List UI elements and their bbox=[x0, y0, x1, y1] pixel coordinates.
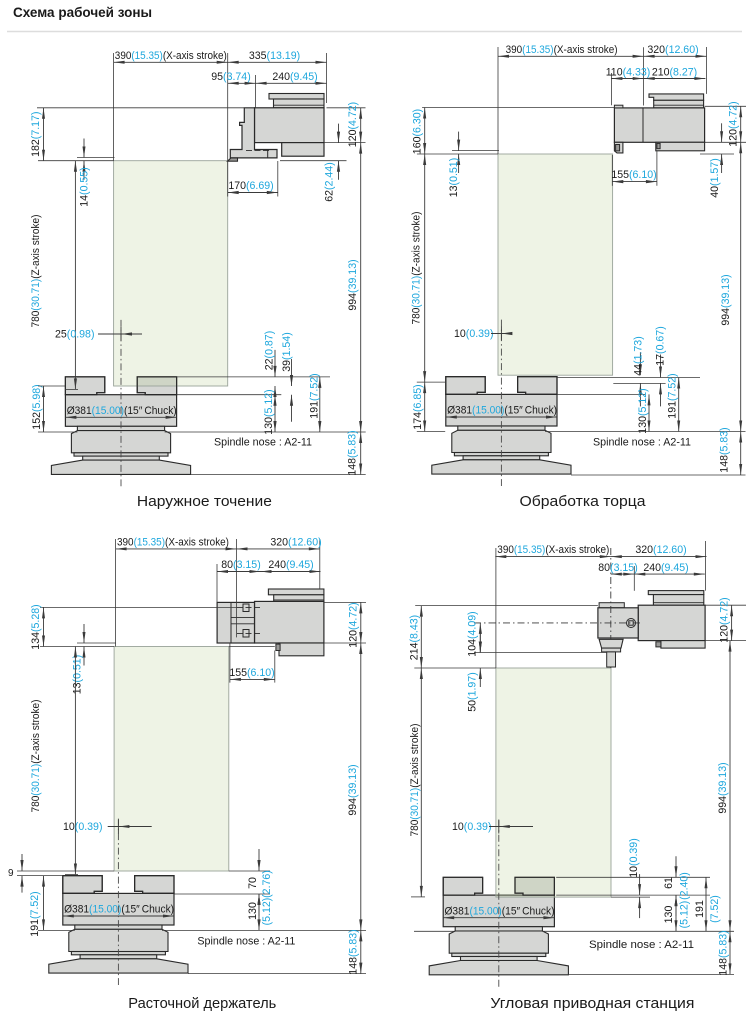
svg-text:390(15.35)(X-axis stroke): 390(15.35)(X-axis stroke) bbox=[506, 44, 618, 56]
svg-text:240(9.45): 240(9.45) bbox=[268, 559, 313, 571]
svg-text:Ø381(15.00)(15″ Chuck): Ø381(15.00)(15″ Chuck) bbox=[64, 904, 174, 916]
svg-text:Ø381(15.00)(15″ Chuck): Ø381(15.00)(15″ Chuck) bbox=[447, 405, 557, 417]
svg-text:174(6.85): 174(6.85) bbox=[412, 384, 424, 429]
svg-text:(2.76): (2.76) bbox=[261, 870, 273, 898]
svg-text:(5.12): (5.12) bbox=[261, 898, 273, 926]
svg-text:22(0.87): 22(0.87) bbox=[264, 331, 276, 370]
svg-text:Обработка торца: Обработка торца bbox=[520, 493, 647, 510]
svg-text:(5.12): (5.12) bbox=[679, 901, 691, 929]
svg-text:155(6.10): 155(6.10) bbox=[229, 667, 274, 679]
svg-text:Ø381(15.00)(15″ Chuck): Ø381(15.00)(15″ Chuck) bbox=[67, 405, 177, 417]
svg-text:191(7.52): 191(7.52) bbox=[667, 373, 679, 418]
svg-text:9: 9 bbox=[8, 868, 14, 879]
svg-text:148(5.83): 148(5.83) bbox=[718, 930, 730, 975]
svg-text:134(5.28): 134(5.28) bbox=[30, 604, 42, 649]
svg-text:148(5.83): 148(5.83) bbox=[719, 427, 731, 472]
svg-text:Расточной держатель: Расточной держатель bbox=[128, 995, 276, 1012]
svg-text:182(7.17): 182(7.17) bbox=[30, 112, 42, 157]
svg-text:160(6.30): 160(6.30) bbox=[412, 109, 424, 154]
svg-text:104(4.09): 104(4.09) bbox=[467, 611, 479, 656]
svg-text:13(0.51): 13(0.51) bbox=[448, 158, 460, 197]
svg-text:780(30.71)(Z-axis stroke): 780(30.71)(Z-axis stroke) bbox=[30, 215, 42, 328]
svg-text:13(0.51): 13(0.51) bbox=[72, 655, 84, 694]
svg-text:25(0.98): 25(0.98) bbox=[55, 329, 94, 341]
svg-text:62(2.44): 62(2.44) bbox=[324, 162, 336, 201]
svg-text:191(7.52): 191(7.52) bbox=[29, 891, 41, 936]
svg-text:(7.52): (7.52) bbox=[709, 895, 721, 923]
svg-text:Угловая приводная станция: Угловая приводная станция bbox=[490, 995, 694, 1012]
svg-text:10(0.39): 10(0.39) bbox=[628, 838, 640, 877]
svg-text:390(15.35)(X-axis stroke): 390(15.35)(X-axis stroke) bbox=[497, 544, 609, 556]
svg-text:390(15.35)(X-axis stroke): 390(15.35)(X-axis stroke) bbox=[117, 537, 229, 549]
svg-text:14(0.55): 14(0.55) bbox=[79, 167, 91, 206]
svg-text:Spindle nose : A2-11: Spindle nose : A2-11 bbox=[197, 936, 295, 948]
svg-text:120(4.72): 120(4.72) bbox=[719, 597, 731, 642]
svg-text:152(5.98): 152(5.98) bbox=[31, 384, 43, 429]
svg-text:148(5.83): 148(5.83) bbox=[348, 929, 360, 974]
svg-text:39(1.54): 39(1.54) bbox=[281, 332, 293, 371]
svg-text:61: 61 bbox=[663, 877, 675, 889]
svg-text:120(4.72): 120(4.72) bbox=[347, 102, 359, 147]
svg-text:214(8.43): 214(8.43) bbox=[409, 615, 421, 660]
svg-text:780(30.71)(Z-axis stroke): 780(30.71)(Z-axis stroke) bbox=[409, 724, 421, 837]
svg-text:Наружное точение: Наружное точение bbox=[137, 493, 272, 510]
svg-text:Spindle nose : A2-11: Spindle nose : A2-11 bbox=[593, 437, 691, 449]
svg-text:110(4.33): 110(4.33) bbox=[606, 67, 651, 79]
svg-text:240(9.45): 240(9.45) bbox=[272, 71, 317, 83]
svg-text:80(3.15): 80(3.15) bbox=[221, 559, 260, 571]
svg-text:17(0.67): 17(0.67) bbox=[655, 326, 667, 365]
svg-text:130: 130 bbox=[247, 902, 259, 920]
svg-text:780(30.71)(Z-axis stroke): 780(30.71)(Z-axis stroke) bbox=[411, 212, 423, 325]
svg-text:130(5.12): 130(5.12) bbox=[263, 389, 275, 434]
svg-text:10(0.39): 10(0.39) bbox=[63, 821, 102, 833]
svg-text:240(9.45): 240(9.45) bbox=[643, 562, 688, 574]
svg-text:994(39.13): 994(39.13) bbox=[717, 762, 729, 813]
svg-text:210(8.27): 210(8.27) bbox=[652, 67, 697, 79]
svg-text:120(4.72): 120(4.72) bbox=[728, 101, 740, 146]
svg-text:Схема рабочей зоны: Схема рабочей зоны bbox=[13, 5, 152, 20]
svg-text:10(0.39): 10(0.39) bbox=[454, 328, 493, 340]
svg-text:95(3.74): 95(3.74) bbox=[211, 71, 250, 83]
svg-text:994(39.13): 994(39.13) bbox=[720, 274, 732, 325]
svg-text:320(12.60): 320(12.60) bbox=[635, 544, 686, 556]
svg-text:44(1.73): 44(1.73) bbox=[633, 336, 645, 375]
svg-text:148(5.83): 148(5.83) bbox=[346, 430, 358, 475]
svg-text:320(12.60): 320(12.60) bbox=[647, 44, 698, 56]
svg-text:335(13.19): 335(13.19) bbox=[249, 50, 300, 62]
svg-text:(2.40): (2.40) bbox=[679, 872, 691, 900]
svg-text:Spindle nose : A2-11: Spindle nose : A2-11 bbox=[214, 437, 312, 449]
svg-text:390(15.35)(X-axis stroke): 390(15.35)(X-axis stroke) bbox=[115, 50, 227, 62]
svg-text:80(3.15): 80(3.15) bbox=[598, 562, 637, 574]
svg-text:155(6.10): 155(6.10) bbox=[611, 169, 656, 181]
svg-text:Spindle nose : A2-11: Spindle nose : A2-11 bbox=[589, 939, 694, 951]
svg-text:120(4.72): 120(4.72) bbox=[348, 602, 360, 647]
svg-text:40(1.57): 40(1.57) bbox=[709, 158, 721, 197]
svg-text:320(12.60): 320(12.60) bbox=[270, 537, 321, 549]
svg-text:170(6.69): 170(6.69) bbox=[228, 180, 273, 192]
svg-text:191: 191 bbox=[694, 900, 706, 918]
svg-text:191(7.52): 191(7.52) bbox=[309, 373, 321, 418]
svg-text:780(30.71)(Z-axis stroke): 780(30.71)(Z-axis stroke) bbox=[30, 700, 42, 813]
svg-text:130: 130 bbox=[663, 906, 675, 924]
svg-text:994(39.13): 994(39.13) bbox=[347, 259, 359, 310]
svg-text:994(39.13): 994(39.13) bbox=[347, 764, 359, 815]
svg-text:Ø381(15.00)(15″ Chuck): Ø381(15.00)(15″ Chuck) bbox=[445, 905, 555, 917]
svg-text:130(5.12): 130(5.12) bbox=[637, 388, 649, 433]
svg-text:70: 70 bbox=[247, 877, 259, 889]
svg-text:10(0.39): 10(0.39) bbox=[452, 821, 491, 833]
svg-text:50(1.97): 50(1.97) bbox=[467, 672, 479, 711]
